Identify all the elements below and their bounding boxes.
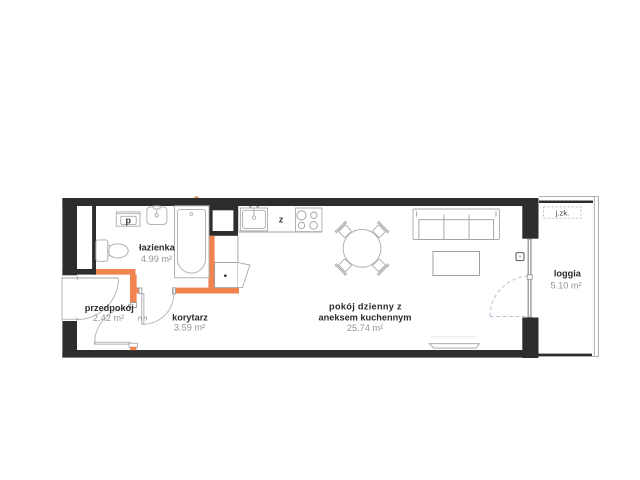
svg-text:25.74 m²: 25.74 m² bbox=[347, 323, 383, 333]
svg-text:korytarz: korytarz bbox=[172, 312, 208, 322]
svg-text:j.zk.: j.zk. bbox=[555, 209, 570, 218]
svg-text:łazienka: łazienka bbox=[139, 242, 176, 252]
svg-text:5.10 m²: 5.10 m² bbox=[550, 281, 581, 291]
svg-text:p: p bbox=[126, 215, 132, 225]
svg-text:pokój dzienny z: pokój dzienny z bbox=[329, 301, 402, 311]
svg-text:loggia: loggia bbox=[554, 269, 582, 279]
svg-text:z: z bbox=[279, 215, 284, 225]
svg-text:2.42 m²: 2.42 m² bbox=[93, 313, 124, 323]
svg-text:4.99 m²: 4.99 m² bbox=[141, 254, 172, 264]
svg-text:przedpokój: przedpokój bbox=[85, 303, 134, 313]
svg-text:3.59 m²: 3.59 m² bbox=[174, 323, 205, 333]
svg-text:aneksem kuchennym: aneksem kuchennym bbox=[319, 312, 412, 322]
